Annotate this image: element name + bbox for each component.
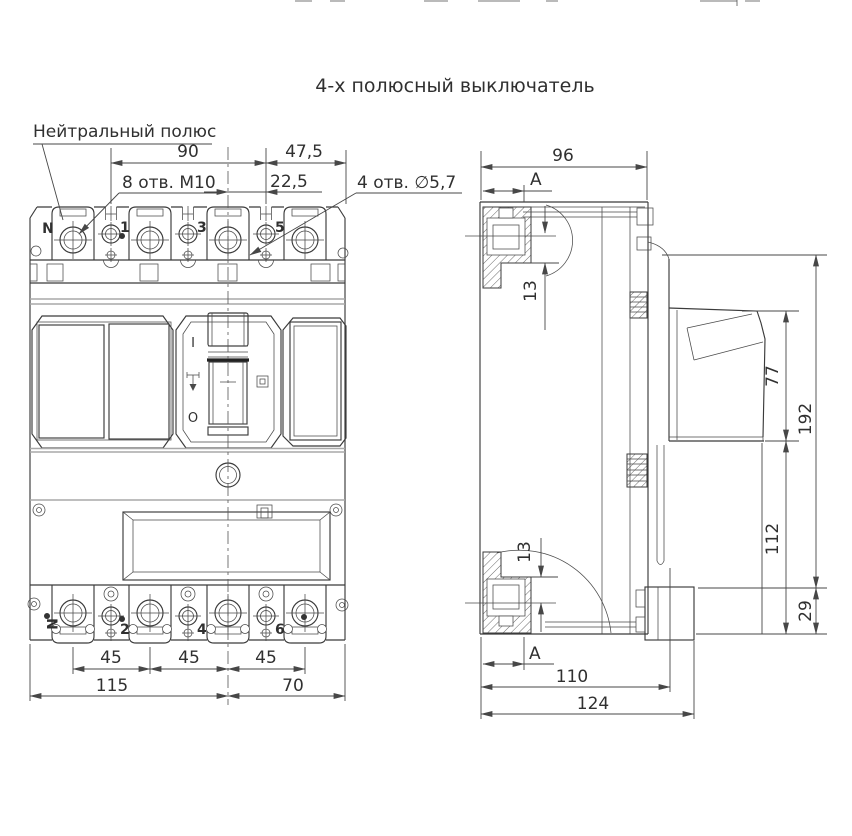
- dim-right-width: 70: [282, 676, 304, 696]
- drawing-title: 4-х полюсный выключатель: [315, 75, 594, 97]
- section-a-bottom: А: [529, 644, 541, 664]
- dim-bottom-step: 29: [796, 600, 816, 622]
- dim-total-height: 192: [796, 403, 816, 435]
- dim-terminal-13-bottom: 13: [515, 541, 535, 563]
- terminal-label-1: 1: [120, 220, 130, 236]
- neutral-pole-label: Нейтральный полюс: [33, 122, 216, 142]
- dim-pitch-2: 45: [178, 648, 200, 668]
- dim-base-height: 112: [763, 523, 783, 555]
- dim-depth: 96: [552, 146, 574, 166]
- dim-pole-span: 90: [177, 142, 199, 162]
- dim-mount-depth: 110: [556, 667, 588, 687]
- dim-cover-height: 77: [763, 365, 783, 387]
- terminal-label-4: 4: [197, 622, 207, 638]
- terminal-label-5: 5: [275, 220, 285, 236]
- toggle-on-mark: I: [191, 336, 195, 351]
- section-a-top: А: [530, 170, 542, 190]
- terminal-label-n-top: N: [42, 221, 54, 237]
- dim-pitch-1: 45: [100, 648, 122, 668]
- dim-terminal-13-top: 13: [521, 280, 541, 302]
- terminal-label-3: 3: [197, 220, 207, 236]
- terminal-label-2: 2: [120, 622, 130, 638]
- drawing-page: I O: [0, 0, 852, 836]
- vent-grille-lower: [627, 454, 647, 487]
- dim-half-pitch: 22,5: [270, 172, 308, 192]
- mounting-holes-label: 8 отв. М10: [122, 173, 216, 193]
- terminal-label-6: 6: [275, 622, 285, 638]
- technical-drawing: I O: [0, 0, 852, 836]
- dim-left-width: 115: [96, 676, 128, 696]
- toggle-off-mark: O: [188, 411, 198, 426]
- panel-holes-label: 4 отв. ∅5,7: [357, 173, 456, 193]
- terminal-label-n-bottom: N: [43, 618, 59, 630]
- dim-right-span: 47,5: [285, 142, 323, 162]
- dim-pitch-3: 45: [255, 648, 277, 668]
- dim-total-depth: 124: [577, 694, 609, 714]
- vent-grille-upper: [630, 292, 647, 318]
